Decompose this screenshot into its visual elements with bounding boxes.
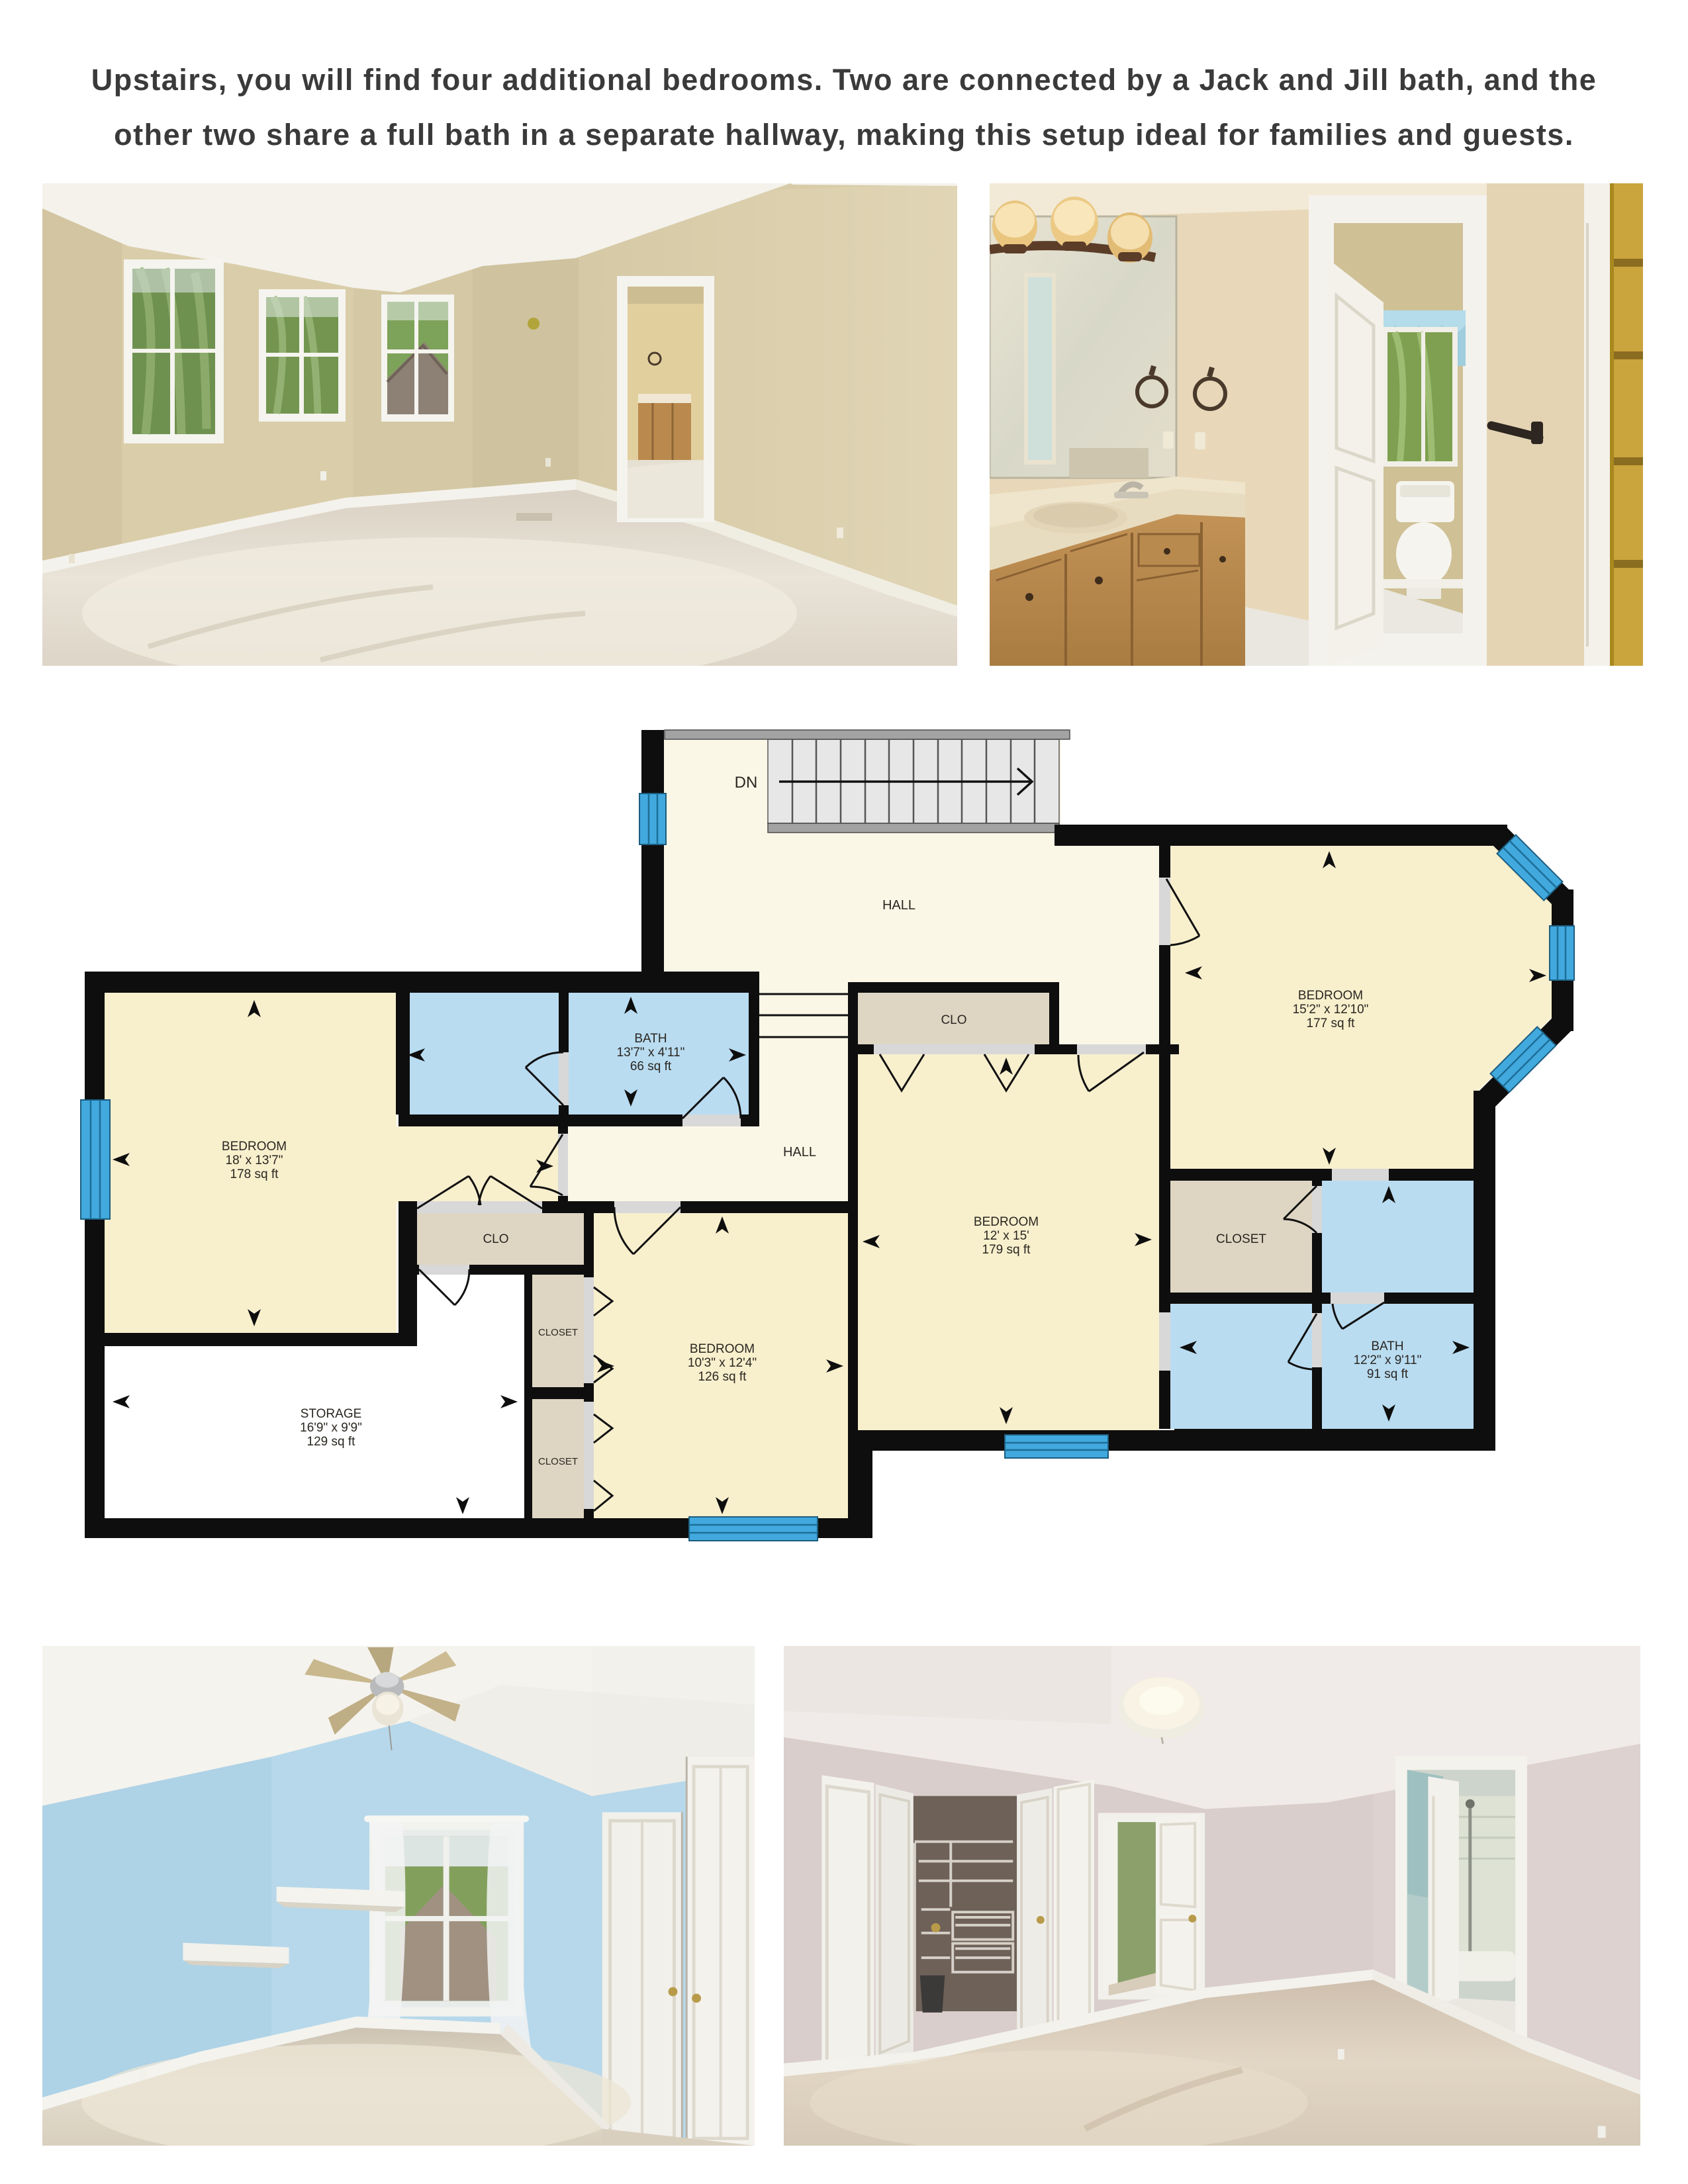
- svg-text:BATH: BATH: [634, 1032, 667, 1046]
- svg-text:129 sq ft: 129 sq ft: [307, 1435, 356, 1449]
- svg-text:15'2" x 12'10": 15'2" x 12'10": [1293, 1003, 1369, 1017]
- svg-text:CLOSET: CLOSET: [538, 1327, 578, 1338]
- svg-text:91 sq ft: 91 sq ft: [1367, 1367, 1409, 1381]
- svg-text:12' x 15': 12' x 15': [983, 1229, 1029, 1243]
- svg-text:18' x 13'7": 18' x 13'7": [226, 1154, 283, 1167]
- svg-text:10'3" x 12'4": 10'3" x 12'4": [688, 1356, 757, 1370]
- svg-text:177 sq ft: 177 sq ft: [1307, 1017, 1356, 1030]
- svg-text:126 sq ft: 126 sq ft: [698, 1370, 747, 1384]
- svg-text:HALL: HALL: [783, 1145, 816, 1160]
- svg-text:CLOSET: CLOSET: [1216, 1232, 1266, 1246]
- svg-text:178 sq ft: 178 sq ft: [230, 1167, 279, 1181]
- svg-text:179 sq ft: 179 sq ft: [982, 1243, 1031, 1257]
- svg-text:BEDROOM: BEDROOM: [690, 1342, 755, 1356]
- svg-text:STORAGE: STORAGE: [301, 1407, 362, 1421]
- svg-text:HALL: HALL: [882, 898, 915, 913]
- svg-text:66 sq ft: 66 sq ft: [630, 1060, 672, 1073]
- svg-text:13'7" x 4'11": 13'7" x 4'11": [617, 1046, 685, 1060]
- svg-text:BEDROOM: BEDROOM: [222, 1140, 287, 1154]
- svg-text:BATH: BATH: [1371, 1340, 1403, 1353]
- svg-text:DN: DN: [735, 774, 758, 792]
- svg-text:BEDROOM: BEDROOM: [1298, 989, 1363, 1003]
- svg-text:16'9" x 9'9": 16'9" x 9'9": [300, 1421, 362, 1435]
- svg-text:BEDROOM: BEDROOM: [974, 1215, 1039, 1229]
- svg-text:CLOSET: CLOSET: [538, 1456, 578, 1467]
- svg-text:CLO: CLO: [941, 1013, 966, 1027]
- svg-text:CLO: CLO: [483, 1232, 508, 1246]
- svg-text:12'2" x 9'11": 12'2" x 9'11": [1354, 1353, 1422, 1367]
